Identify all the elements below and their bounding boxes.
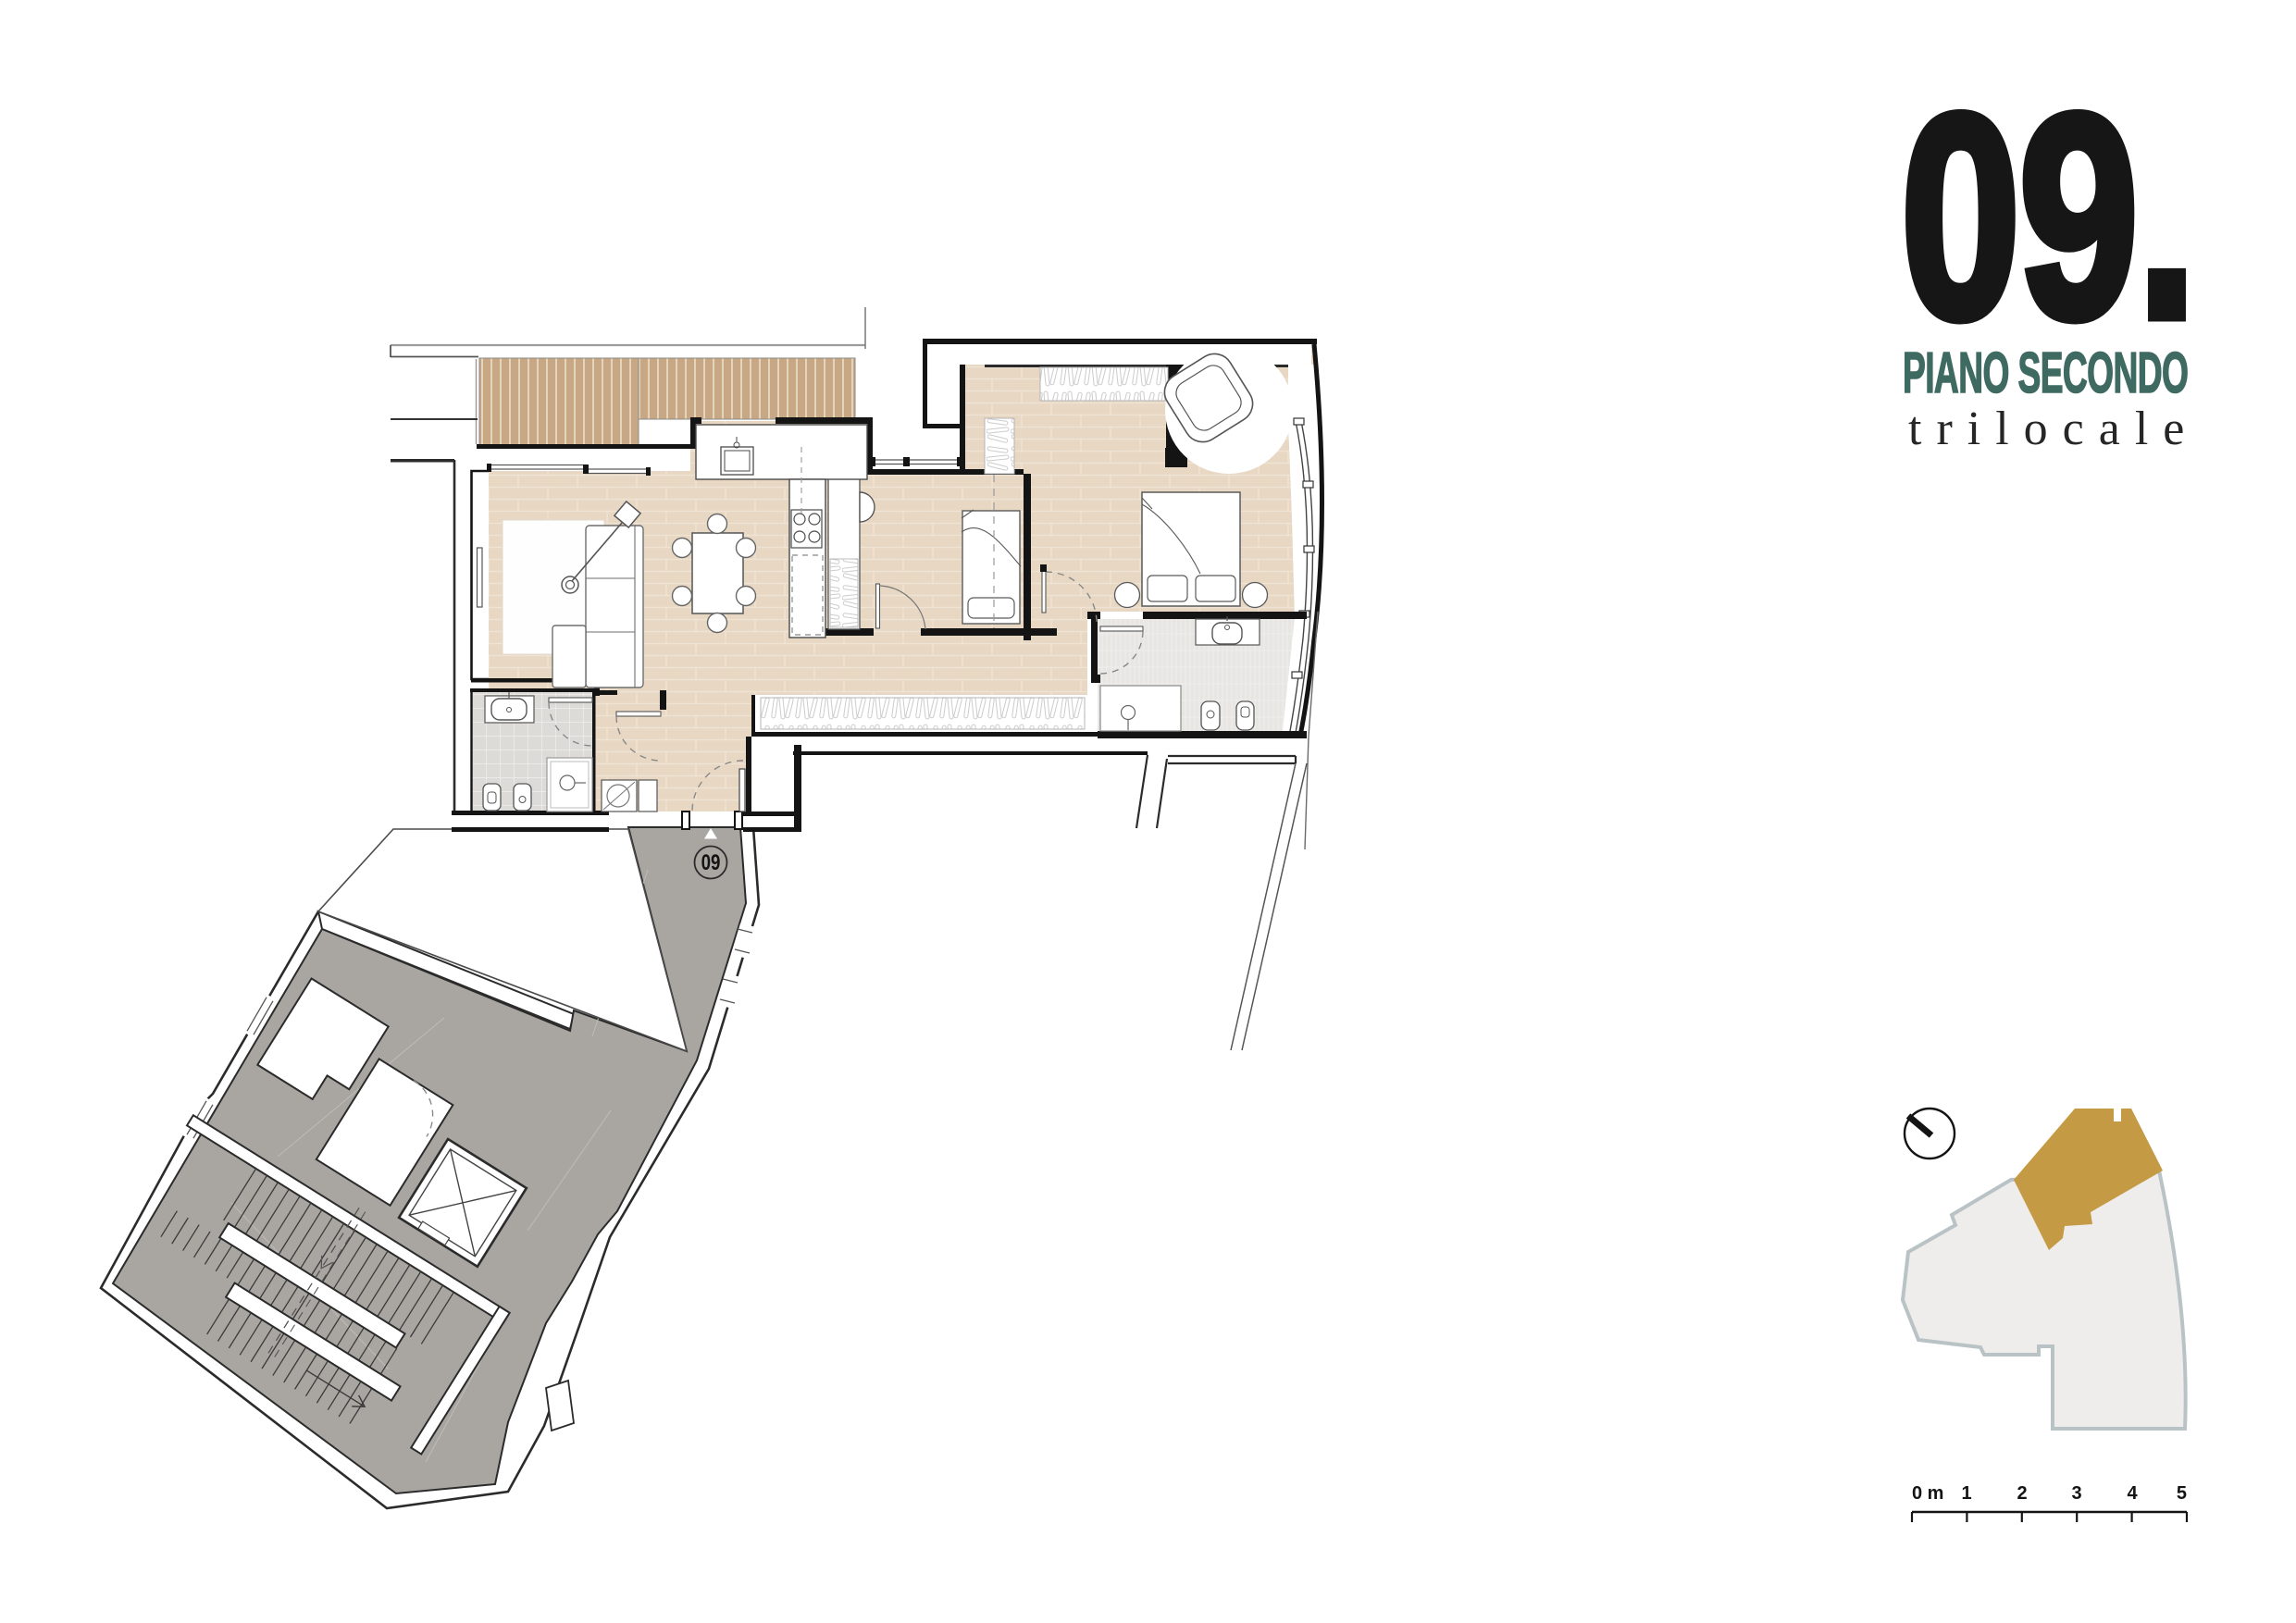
svg-text:5: 5 xyxy=(2177,1483,2187,1504)
svg-text:3: 3 xyxy=(2071,1483,2081,1504)
svg-text:2: 2 xyxy=(2017,1483,2027,1504)
svg-text:4: 4 xyxy=(2127,1483,2138,1504)
svg-text:1: 1 xyxy=(1961,1483,1971,1504)
svg-text:PIANO SECONDO: PIANO SECONDO xyxy=(1903,341,2188,404)
svg-text:0 m: 0 m xyxy=(1912,1483,1943,1504)
svg-text:trilocale: trilocale xyxy=(1908,403,2199,455)
svg-text:09.: 09. xyxy=(1901,56,2195,378)
svg-text:09: 09 xyxy=(701,850,721,875)
